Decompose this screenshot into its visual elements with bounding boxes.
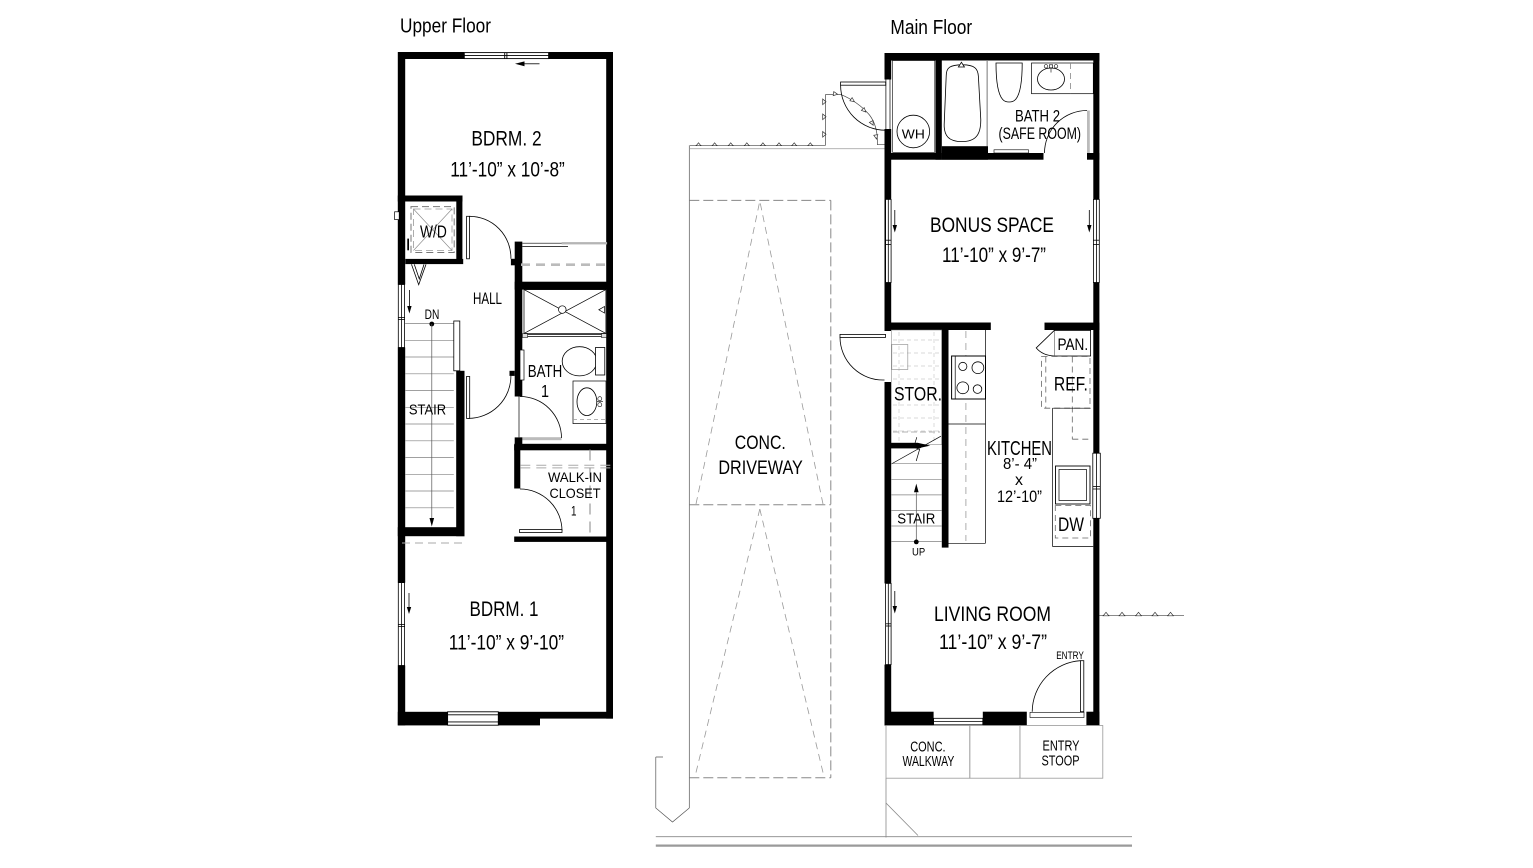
svg-text:11’-10” x 9’-10”: 11’-10” x 9’-10” xyxy=(449,630,564,654)
svg-text:11’-10” x 10’-8”: 11’-10” x 10’-8” xyxy=(450,157,565,181)
svg-text:ENTRY: ENTRY xyxy=(1043,739,1080,755)
svg-text:1: 1 xyxy=(541,381,549,401)
svg-text:BATH 2: BATH 2 xyxy=(1015,108,1060,126)
svg-text:11’-10” x 9’-7”: 11’-10” x 9’-7” xyxy=(939,631,1047,654)
svg-text:WALKWAY: WALKWAY xyxy=(903,754,955,770)
svg-text:DN: DN xyxy=(425,307,440,322)
svg-text:CONC.: CONC. xyxy=(735,432,786,454)
svg-text:STOR.: STOR. xyxy=(894,384,942,406)
svg-text:CLOSET: CLOSET xyxy=(550,486,602,501)
svg-text:11’-10” x 9’-7”: 11’-10” x 9’-7” xyxy=(942,244,1046,267)
svg-text:12’-10”: 12’-10” xyxy=(997,487,1042,506)
svg-text:BATH: BATH xyxy=(528,361,563,381)
svg-text:BONUS SPACE: BONUS SPACE xyxy=(930,214,1054,237)
svg-text:8’- 4”: 8’- 4” xyxy=(1003,456,1037,473)
svg-text:CONC.: CONC. xyxy=(910,739,945,755)
svg-text:DW: DW xyxy=(1058,515,1085,536)
svg-text:Upper Floor: Upper Floor xyxy=(400,16,491,38)
svg-text:STOOP: STOOP xyxy=(1042,753,1080,769)
svg-text:Main Floor: Main Floor xyxy=(890,17,972,39)
svg-text:ENTRY: ENTRY xyxy=(1056,650,1084,662)
svg-text:STAIR: STAIR xyxy=(409,403,446,419)
svg-text:PAN.: PAN. xyxy=(1057,335,1088,354)
svg-text:LIVING ROOM: LIVING ROOM xyxy=(934,603,1051,626)
svg-text:REF.: REF. xyxy=(1054,374,1088,395)
svg-text:HALL: HALL xyxy=(473,290,502,308)
svg-text:WALK-IN: WALK-IN xyxy=(548,470,602,485)
svg-text:UP: UP xyxy=(912,546,925,558)
svg-text:W/D: W/D xyxy=(420,221,447,241)
svg-text:1: 1 xyxy=(571,504,577,519)
svg-text:STAIR: STAIR xyxy=(897,511,935,527)
svg-text:DRIVEWAY: DRIVEWAY xyxy=(718,457,803,479)
svg-text:BDRM. 2: BDRM. 2 xyxy=(471,127,541,151)
svg-text:WH: WH xyxy=(902,128,925,142)
svg-text:(SAFE ROOM): (SAFE ROOM) xyxy=(999,125,1082,143)
svg-text:BDRM. 1: BDRM. 1 xyxy=(470,597,539,621)
